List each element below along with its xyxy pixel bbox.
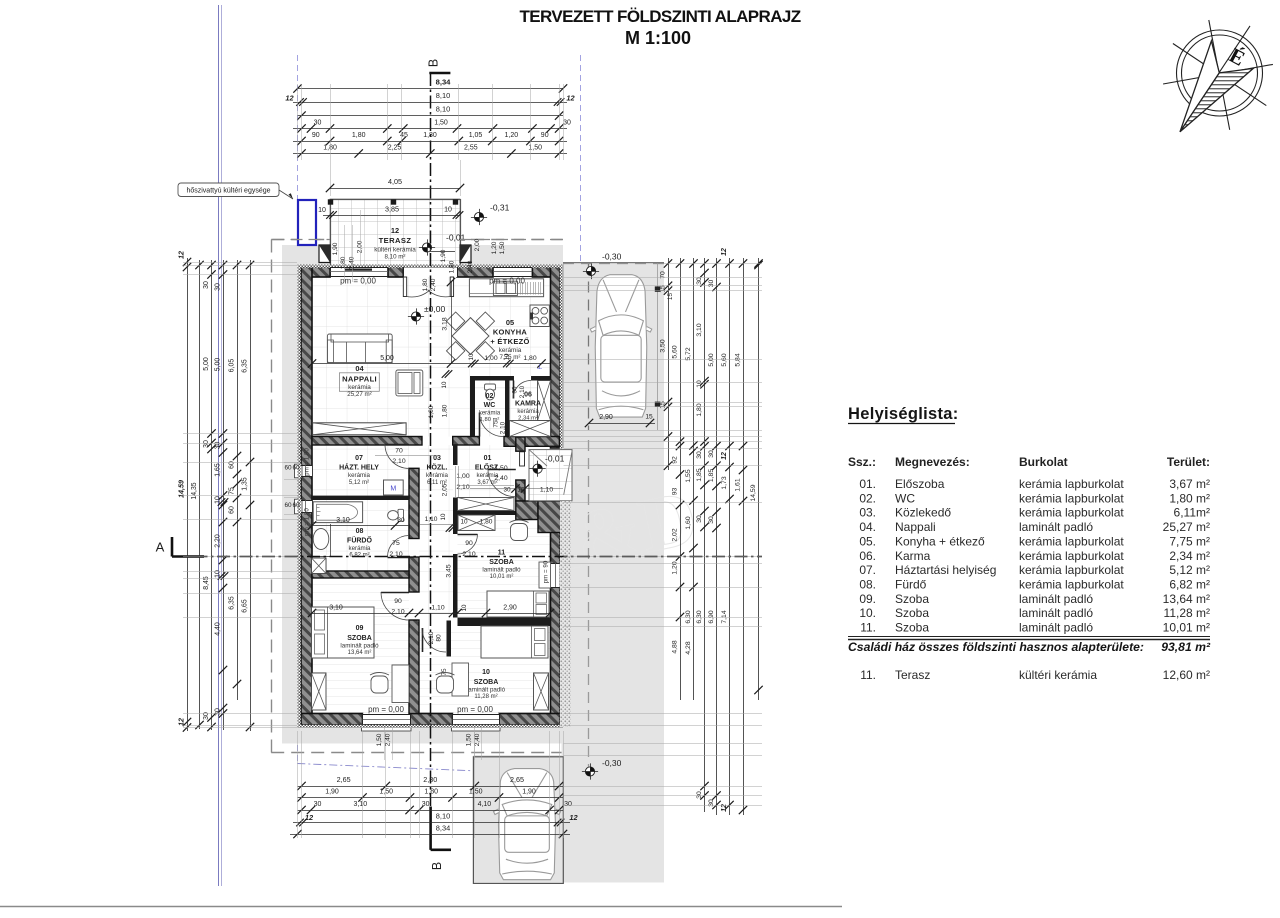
svg-text:10: 10 (461, 604, 468, 611)
svg-text:6,05: 6,05 (229, 359, 236, 373)
svg-text:M 1:100: M 1:100 (625, 28, 691, 48)
svg-text:30: 30 (563, 120, 571, 127)
svg-text:TERVEZETT FÖLDSZINTI ALAPRAJZ: TERVEZETT FÖLDSZINTI ALAPRAJZ (519, 7, 800, 26)
svg-text:1,05: 1,05 (469, 132, 483, 139)
svg-text:30: 30 (215, 442, 222, 450)
svg-text:6,90: 6,90 (708, 610, 715, 623)
svg-text:09.: 09. (859, 592, 876, 606)
svg-text:KAMRA: KAMRA (515, 401, 541, 408)
svg-text:laminált padló: laminált padló (1019, 606, 1093, 620)
svg-text:10,01 m²: 10,01 m² (490, 574, 514, 580)
svg-text:1,90: 1,90 (332, 242, 339, 255)
svg-text:13,64 m²: 13,64 m² (1163, 592, 1210, 606)
svg-text:75: 75 (493, 420, 500, 428)
svg-text:60: 60 (292, 502, 300, 509)
svg-text:pm = 0,00: pm = 0,00 (489, 277, 525, 286)
svg-text:1,80: 1,80 (424, 789, 438, 796)
svg-text:60: 60 (292, 465, 300, 472)
svg-text:10: 10 (441, 381, 448, 388)
svg-text:05.: 05. (859, 534, 876, 548)
svg-text:Előszoba: Előszoba (895, 477, 945, 491)
svg-text:02.: 02. (859, 491, 876, 505)
svg-text:08.: 08. (859, 578, 876, 592)
svg-text:90: 90 (394, 598, 402, 605)
svg-text:4,88: 4,88 (672, 640, 679, 653)
svg-text:75: 75 (229, 487, 236, 495)
svg-text:5,00: 5,00 (215, 358, 222, 372)
svg-text:laminált padló: laminált padló (1019, 592, 1093, 606)
svg-text:kerámia: kerámia (479, 411, 501, 417)
svg-text:3,18: 3,18 (442, 317, 449, 330)
svg-text:12: 12 (391, 226, 399, 235)
svg-text:5,12 m²: 5,12 m² (1169, 563, 1210, 577)
svg-text:laminált padló: laminált padló (1019, 621, 1093, 635)
svg-text:kerámia lapburkolat: kerámia lapburkolat (1019, 506, 1124, 520)
svg-text:2,90: 2,90 (599, 414, 613, 421)
svg-text:11: 11 (498, 550, 506, 557)
svg-text:06.: 06. (859, 549, 876, 563)
svg-text:Szoba: Szoba (895, 592, 929, 606)
svg-text:10: 10 (696, 380, 703, 388)
svg-text:5,60: 5,60 (721, 353, 728, 366)
svg-text:kerámia: kerámia (348, 545, 371, 552)
svg-text:2,65: 2,65 (510, 775, 524, 784)
svg-text:13,64 m²: 13,64 m² (348, 650, 372, 656)
svg-text:30: 30 (503, 487, 511, 494)
svg-text:kerámia: kerámia (348, 472, 371, 479)
svg-text:kültéri kerámia: kültéri kerámia (374, 247, 416, 254)
svg-text:kültéri kerámia: kültéri kerámia (1019, 668, 1097, 682)
svg-text:pm = 0,00: pm = 0,00 (340, 277, 376, 286)
svg-text:2,00: 2,00 (474, 238, 481, 251)
svg-text:1,80: 1,80 (422, 278, 429, 291)
svg-text:1,10: 1,10 (425, 516, 438, 523)
svg-text:6,30: 6,30 (696, 610, 703, 623)
svg-text:2,20: 2,20 (215, 534, 222, 548)
svg-text:laminált padló: laminált padló (482, 567, 521, 574)
svg-text:1,80 m²: 1,80 m² (1169, 491, 1210, 505)
svg-text:12,60 m²: 12,60 m² (1163, 668, 1210, 682)
svg-text:3,50: 3,50 (660, 339, 667, 352)
svg-text:Ssz.:: Ssz.: (848, 455, 876, 469)
svg-text:14,35: 14,35 (191, 482, 198, 499)
svg-text:2,40: 2,40 (349, 256, 356, 269)
svg-text:1,50: 1,50 (376, 733, 383, 746)
svg-text:5,00: 5,00 (203, 357, 210, 371)
svg-text:pm = 90: pm = 90 (543, 560, 550, 583)
svg-text:12: 12 (566, 94, 575, 103)
svg-text:TERASZ: TERASZ (379, 236, 412, 245)
svg-text:30: 30 (203, 281, 210, 289)
svg-text:07: 07 (355, 455, 363, 462)
svg-text:02: 02 (486, 393, 494, 400)
svg-text:4,28: 4,28 (685, 641, 692, 654)
svg-text:1,20: 1,20 (672, 561, 679, 574)
svg-text:FÜRDŐ: FÜRDŐ (347, 536, 372, 545)
svg-text:2,10: 2,10 (519, 385, 526, 398)
svg-text:30: 30 (314, 801, 322, 808)
svg-text:Terasz: Terasz (895, 668, 930, 682)
svg-text:1,50: 1,50 (434, 120, 448, 127)
svg-text:B: B (430, 862, 444, 870)
svg-text:3,45: 3,45 (446, 564, 453, 577)
svg-text:Szoba: Szoba (895, 606, 929, 620)
svg-text:Háztartási helyiség: Háztartási helyiség (895, 563, 996, 577)
svg-text:2,10: 2,10 (462, 551, 475, 558)
svg-text:Családi ház összes földszinti: Családi ház összes földszinti hasznos al… (848, 640, 1144, 654)
svg-text:2,90: 2,90 (503, 605, 517, 612)
svg-text:1,50: 1,50 (469, 789, 483, 796)
svg-text:1,50: 1,50 (494, 465, 507, 472)
svg-text:12: 12 (721, 248, 728, 256)
svg-text:2,65: 2,65 (337, 775, 351, 784)
svg-text:±0,00: ±0,00 (424, 304, 445, 314)
svg-text:12: 12 (177, 251, 186, 259)
svg-text:04: 04 (355, 364, 364, 373)
svg-text:30: 30 (696, 277, 703, 285)
svg-text:1,00: 1,00 (484, 355, 497, 362)
svg-text:1,80: 1,80 (442, 404, 449, 417)
svg-text:15: 15 (660, 401, 667, 409)
svg-text:1,80: 1,80 (340, 256, 347, 269)
svg-text:kerámia lapburkolat: kerámia lapburkolat (1019, 563, 1124, 577)
svg-text:2,02: 2,02 (672, 528, 679, 541)
svg-text:25,27 m²: 25,27 m² (1163, 520, 1210, 534)
svg-text:1,80: 1,80 (323, 145, 337, 152)
svg-text:pm = 1,80: pm = 1,80 (304, 508, 311, 536)
svg-text:80: 80 (436, 634, 443, 642)
svg-text:laminált padló: laminált padló (1019, 520, 1093, 534)
svg-text:1,60: 1,60 (685, 516, 692, 529)
svg-text:60: 60 (229, 461, 236, 469)
svg-text:3,10: 3,10 (329, 605, 343, 612)
svg-text:6,30: 6,30 (685, 610, 692, 623)
svg-text:laminált padló: laminált padló (340, 643, 379, 650)
svg-text:5,00: 5,00 (380, 355, 394, 362)
svg-text:1,80: 1,80 (523, 355, 536, 362)
svg-text:10: 10 (482, 669, 490, 676)
svg-text:10: 10 (444, 207, 452, 214)
svg-text:2,10: 2,10 (500, 421, 507, 434)
svg-text:1,80: 1,80 (449, 260, 456, 273)
svg-text:30: 30 (215, 708, 222, 716)
svg-text:1,80: 1,80 (352, 132, 366, 139)
svg-text:3,10: 3,10 (353, 801, 367, 808)
svg-text:12: 12 (721, 804, 728, 812)
svg-text:10: 10 (468, 353, 475, 360)
svg-text:5,00: 5,00 (708, 353, 715, 366)
svg-text:6,35: 6,35 (242, 359, 249, 373)
svg-text:Nappali: Nappali (895, 520, 936, 534)
svg-text:Konyha + étkező: Konyha + étkező (895, 534, 985, 548)
svg-text:2,10: 2,10 (391, 609, 404, 616)
svg-text:2,40: 2,40 (474, 733, 481, 746)
svg-text:2,25: 2,25 (388, 145, 402, 152)
svg-text:kerámia lapburkolat: kerámia lapburkolat (1019, 534, 1124, 548)
svg-text:-0,30: -0,30 (602, 252, 622, 262)
svg-text:10.: 10. (859, 606, 876, 620)
svg-text:30: 30 (696, 515, 703, 523)
svg-text:kerámia: kerámia (426, 472, 449, 479)
svg-text:03.: 03. (859, 506, 876, 520)
svg-text:Megnevezés:: Megnevezés: (895, 455, 970, 469)
svg-text:60: 60 (229, 506, 236, 514)
svg-text:11,28 m²: 11,28 m² (1164, 606, 1210, 620)
svg-text:8,34: 8,34 (436, 824, 450, 833)
svg-text:Fürdő: Fürdő (895, 578, 927, 592)
svg-text:3,10: 3,10 (696, 323, 703, 336)
svg-text:30: 30 (708, 516, 715, 524)
svg-text:30: 30 (708, 280, 715, 288)
svg-text:4,05: 4,05 (388, 177, 402, 186)
svg-text:1,50: 1,50 (499, 241, 506, 254)
svg-text:kerámia lapburkolat: kerámia lapburkolat (1019, 491, 1124, 505)
svg-text:12: 12 (721, 452, 728, 460)
svg-text:M: M (390, 486, 396, 493)
svg-text:09: 09 (356, 625, 364, 632)
svg-text:Szoba: Szoba (895, 621, 929, 635)
svg-text:30: 30 (422, 801, 430, 808)
svg-text:1,73: 1,73 (721, 476, 728, 489)
svg-text:HÁZT. HELY: HÁZT. HELY (339, 463, 379, 472)
svg-text:+ ÉTKEZŐ: + ÉTKEZŐ (490, 337, 529, 346)
svg-text:SZOBA: SZOBA (489, 559, 514, 566)
svg-text:-0,01: -0,01 (446, 233, 466, 243)
svg-text:14,59: 14,59 (750, 484, 757, 501)
svg-text:11.: 11. (860, 668, 876, 682)
svg-text:WC: WC (895, 491, 915, 505)
svg-text:-0,31: -0,31 (490, 203, 510, 213)
svg-text:1,80: 1,80 (423, 132, 437, 139)
svg-text:07.: 07. (859, 563, 876, 577)
svg-text:A: A (156, 540, 165, 555)
svg-text:7,14: 7,14 (721, 610, 728, 623)
svg-text:93: 93 (672, 488, 679, 496)
svg-text:75: 75 (441, 668, 448, 676)
svg-text:2,34 m²: 2,34 m² (518, 416, 538, 422)
svg-text:KÖZL.: KÖZL. (427, 463, 448, 472)
svg-text:8,10 m²: 8,10 m² (385, 254, 406, 261)
svg-text:6,65: 6,65 (242, 599, 249, 613)
svg-text:04.: 04. (859, 520, 876, 534)
svg-text:pm = 0,00: pm = 0,00 (368, 705, 404, 714)
svg-text:1,90: 1,90 (440, 249, 447, 262)
svg-text:5,60: 5,60 (672, 345, 679, 358)
svg-text:15: 15 (645, 414, 653, 421)
svg-text:10: 10 (460, 519, 468, 526)
svg-text:3,10: 3,10 (336, 517, 350, 524)
svg-text:2,10: 2,10 (392, 458, 405, 465)
svg-text:25,27 m²: 25,27 m² (347, 391, 371, 398)
svg-text:10: 10 (504, 353, 511, 360)
svg-text:2,10: 2,10 (428, 631, 435, 644)
svg-text:-0,01: -0,01 (545, 454, 565, 464)
svg-text:6,11m²: 6,11m² (1174, 506, 1210, 520)
svg-text:Terület:: Terület: (1167, 455, 1210, 469)
svg-text:01.: 01. (859, 477, 876, 491)
svg-text:30: 30 (564, 801, 572, 808)
svg-text:3,85: 3,85 (385, 205, 399, 214)
svg-text:15: 15 (667, 293, 674, 301)
svg-text:1,65: 1,65 (215, 463, 222, 477)
svg-text:30: 30 (397, 517, 405, 524)
svg-text:SZOBA: SZOBA (474, 679, 499, 686)
svg-text:2,05: 2,05 (442, 483, 449, 496)
svg-text:5,84: 5,84 (735, 353, 742, 366)
svg-text:3,67 m²: 3,67 m² (1169, 477, 1210, 491)
svg-text:pm = 1,80: pm = 1,80 (304, 448, 311, 476)
svg-text:75: 75 (392, 540, 400, 547)
svg-text:kerámia lapburkolat: kerámia lapburkolat (1019, 578, 1124, 592)
svg-text:90: 90 (541, 132, 549, 139)
svg-text:1,55: 1,55 (685, 469, 692, 482)
svg-text:2,34 m²: 2,34 m² (1169, 549, 1210, 563)
svg-text:5,72: 5,72 (685, 347, 692, 360)
svg-text:92: 92 (672, 456, 679, 464)
svg-text:12: 12 (569, 813, 578, 822)
svg-text:6,82 m²: 6,82 m² (1169, 578, 1210, 592)
svg-text:Közlekedő: Közlekedő (895, 506, 951, 520)
svg-text:8,34: 8,34 (436, 78, 452, 87)
svg-text:B: B (427, 59, 441, 67)
svg-text:WC: WC (484, 402, 496, 409)
svg-text:1,20: 1,20 (504, 132, 518, 139)
svg-text:10: 10 (318, 207, 326, 214)
svg-text:12: 12 (305, 813, 314, 822)
svg-text:2,55: 2,55 (464, 145, 478, 152)
svg-text:60: 60 (284, 465, 292, 472)
svg-text:1,90: 1,90 (325, 789, 339, 796)
svg-text:1,85: 1,85 (696, 468, 703, 481)
svg-text:12: 12 (177, 718, 186, 726)
svg-text:30: 30 (215, 283, 222, 291)
svg-text:laminált padló: laminált padló (467, 687, 506, 694)
svg-text:30: 30 (708, 450, 715, 458)
svg-text:kerámia lapburkolat: kerámia lapburkolat (1019, 477, 1124, 491)
svg-text:1,90: 1,90 (522, 789, 536, 796)
svg-text:90: 90 (312, 132, 320, 139)
svg-text:30: 30 (203, 712, 210, 720)
svg-text:kerámia: kerámia (517, 409, 539, 415)
svg-text:2,80: 2,80 (423, 775, 437, 784)
svg-text:Burkolat: Burkolat (1019, 455, 1068, 469)
svg-text:hőszivattyú kültéri egysége: hőszivattyú kültéri egysége (186, 188, 270, 195)
svg-text:1,10: 1,10 (431, 605, 444, 612)
svg-text:05: 05 (506, 318, 514, 327)
svg-text:30: 30 (203, 440, 210, 448)
svg-text:01: 01 (484, 455, 492, 462)
svg-text:30: 30 (696, 451, 703, 459)
svg-text:1,35: 1,35 (242, 477, 249, 491)
svg-text:2,40: 2,40 (385, 733, 392, 746)
svg-text:kerámia: kerámia (499, 347, 522, 354)
svg-text:1,85: 1,85 (708, 469, 715, 482)
svg-text:1,80: 1,80 (480, 519, 493, 526)
svg-text:70: 70 (395, 448, 403, 455)
svg-text:30: 30 (696, 791, 703, 799)
svg-text:-0,30: -0,30 (602, 758, 622, 768)
svg-text:15: 15 (660, 285, 667, 293)
svg-text:03: 03 (433, 455, 441, 462)
svg-text:4,40: 4,40 (215, 622, 222, 636)
svg-text:2,40: 2,40 (467, 260, 474, 273)
svg-text:6,82 m²: 6,82 m² (349, 553, 369, 559)
svg-text:11,28 m²: 11,28 m² (474, 694, 497, 700)
svg-text:8,10: 8,10 (436, 91, 450, 100)
svg-text:2,40: 2,40 (430, 278, 437, 291)
svg-text:KONYHA: KONYHA (493, 328, 528, 337)
svg-text:6,35: 6,35 (229, 596, 236, 610)
svg-text:8,10: 8,10 (436, 812, 450, 821)
svg-text:10: 10 (440, 513, 447, 520)
svg-text:Karma: Karma (895, 549, 931, 563)
svg-text:8,10: 8,10 (436, 105, 450, 114)
svg-text:60: 60 (512, 386, 519, 394)
svg-text:1,50: 1,50 (466, 733, 473, 746)
svg-text:⊥: ⊥ (536, 364, 542, 371)
svg-text:10,01 m²: 10,01 m² (1163, 621, 1210, 635)
svg-text:2,40: 2,40 (494, 475, 507, 482)
svg-text:pm = 0,00: pm = 0,00 (457, 705, 493, 714)
svg-text:8,45: 8,45 (203, 576, 210, 590)
svg-text:11.: 11. (860, 621, 876, 635)
svg-text:NAPPALI: NAPPALI (342, 375, 377, 384)
svg-text:kerámia lapburkolat: kerámia lapburkolat (1019, 549, 1124, 563)
svg-text:1,20: 1,20 (491, 241, 498, 254)
svg-text:30: 30 (314, 120, 322, 127)
svg-text:93,81 m²: 93,81 m² (1161, 640, 1211, 654)
svg-text:7,75 m²: 7,75 m² (1169, 534, 1210, 548)
svg-text:12: 12 (285, 94, 294, 103)
svg-text:1,00: 1,00 (428, 405, 435, 418)
svg-text:1,80: 1,80 (696, 403, 703, 416)
svg-text:1,50: 1,50 (379, 789, 393, 796)
svg-text:60: 60 (284, 502, 292, 509)
svg-text:5,12 m²: 5,12 m² (349, 480, 369, 486)
svg-text:08: 08 (356, 528, 364, 535)
svg-text:1,10: 1,10 (540, 487, 553, 494)
svg-text:4,10: 4,10 (478, 801, 492, 808)
svg-text:Helyiséglista:: Helyiséglista: (848, 405, 959, 423)
svg-text:SZOBA: SZOBA (347, 635, 372, 642)
svg-text:2,10: 2,10 (389, 551, 402, 558)
svg-text:1,61: 1,61 (735, 478, 742, 491)
svg-text:2,00: 2,00 (357, 240, 364, 253)
svg-text:90: 90 (465, 540, 473, 547)
